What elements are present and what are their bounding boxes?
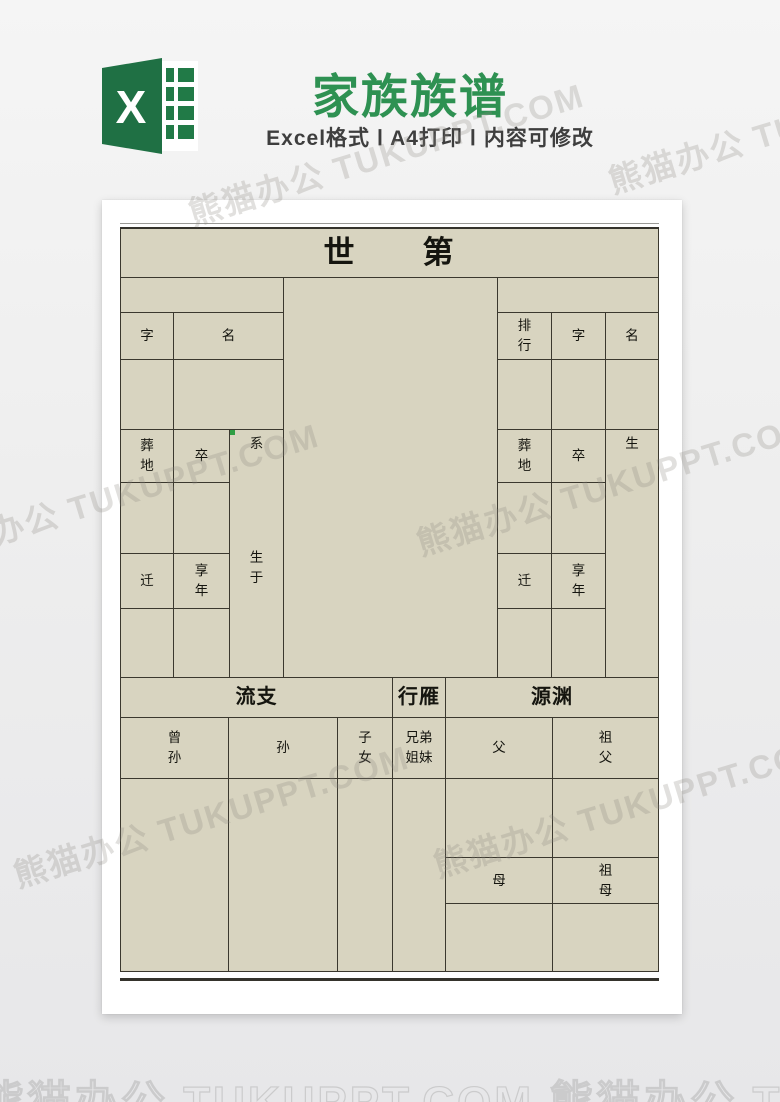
cell-right-zi: 字 (552, 313, 606, 360)
cell-left-qian: 迁 (121, 554, 174, 609)
cell-right-empty-1 (498, 360, 552, 430)
cell-generation-title: 世 第 (121, 229, 659, 278)
cell-zumu: 祖 母 (553, 858, 659, 904)
cell-center-portrait (284, 278, 498, 678)
cell-right-empty-5 (552, 483, 606, 554)
cell-zumu-entry (553, 904, 659, 972)
cell-fu-entry (446, 779, 553, 858)
cell-left-zu: 卒 (174, 430, 230, 483)
label-shengyu: 生 于 (230, 548, 283, 587)
a4-preview-page: 世 第 字 名 葬 地 卒 系 生 于 迁 享 年 排 行 (102, 200, 682, 1014)
cell-left-empty-3 (121, 483, 174, 554)
cell-sun: 孙 (229, 718, 338, 779)
cell-mu: 母 (446, 858, 553, 904)
cell-left-xi-shengyu: 系 生 于 (230, 430, 284, 678)
cell-zinv: 子 女 (338, 718, 393, 779)
page-subtitle: Excel格式 Ⅰ A4打印 Ⅰ 内容可修改 (180, 122, 680, 152)
cell-fu: 父 (446, 718, 553, 779)
cell-left-empty-4 (174, 483, 230, 554)
cell-zufu-entry (553, 779, 659, 858)
cell-right-paihang: 排 行 (498, 313, 552, 360)
cell-left-empty-2 (174, 360, 284, 430)
cell-xiongdijiemei-entry (393, 779, 446, 972)
cell-right-qian: 迁 (498, 554, 552, 609)
cell-zufu: 祖 父 (553, 718, 659, 779)
cell-right-xiangnian: 享 年 (552, 554, 606, 609)
watermark-ghost-strip: 熊猫办公 TUKUPPT.COM 熊猫办公 TUKUPPT.COM 熊猫办公 T… (0, 1066, 780, 1102)
cell-left-empty-5 (121, 609, 174, 678)
cell-zinv-entry (338, 779, 393, 972)
genealogy-table: 世 第 字 名 葬 地 卒 系 生 于 迁 享 年 排 行 (120, 227, 659, 972)
cell-left-zangdi: 葬 地 (121, 430, 174, 483)
cell-zengsun-entry (121, 779, 229, 972)
cell-right-empty-6 (498, 609, 552, 678)
header-yuanyuan: 源渊 (446, 678, 659, 718)
cell-right-empty-2 (552, 360, 606, 430)
cell-right-sheng: 生 (606, 430, 659, 678)
cell-right-zangdi: 葬 地 (498, 430, 552, 483)
cell-sun-entry (229, 779, 338, 972)
table-top-outer-line (120, 223, 659, 224)
header-xingyan: 行雁 (393, 678, 446, 718)
cell-right-zu: 卒 (552, 430, 606, 483)
cell-right-empty-7 (552, 609, 606, 678)
page-title: 家族族谱 (220, 58, 600, 127)
header-liuzhi: 流支 (121, 678, 393, 718)
cell-right-empty-4 (498, 483, 552, 554)
cell-left-ming: 名 (174, 313, 284, 360)
cell-mu-entry (446, 904, 553, 972)
cell-left-empty-6 (174, 609, 230, 678)
cell-xiongdijiemei: 兄弟 姐妹 (393, 718, 446, 779)
excel-letter-x: X (116, 81, 147, 133)
cell-right-top-empty (498, 278, 659, 313)
cell-right-ming: 名 (606, 313, 659, 360)
cell-left-top-empty (121, 278, 284, 313)
cell-left-xiangnian: 享 年 (174, 554, 230, 609)
table-bottom-outer-line (120, 978, 659, 981)
label-xi: 系 (230, 434, 283, 454)
cell-zengsun: 曾 孙 (121, 718, 229, 779)
cell-left-zi: 字 (121, 313, 174, 360)
watermark: 熊猫办公 TUKUPPT.COM (602, 37, 780, 203)
template-preview: X 家族族谱 Excel格式 Ⅰ A4打印 Ⅰ 内容可修改 世 第 字 名 葬 … (0, 0, 780, 1102)
cell-left-empty-1 (121, 360, 174, 430)
cell-right-empty-3 (606, 360, 659, 430)
